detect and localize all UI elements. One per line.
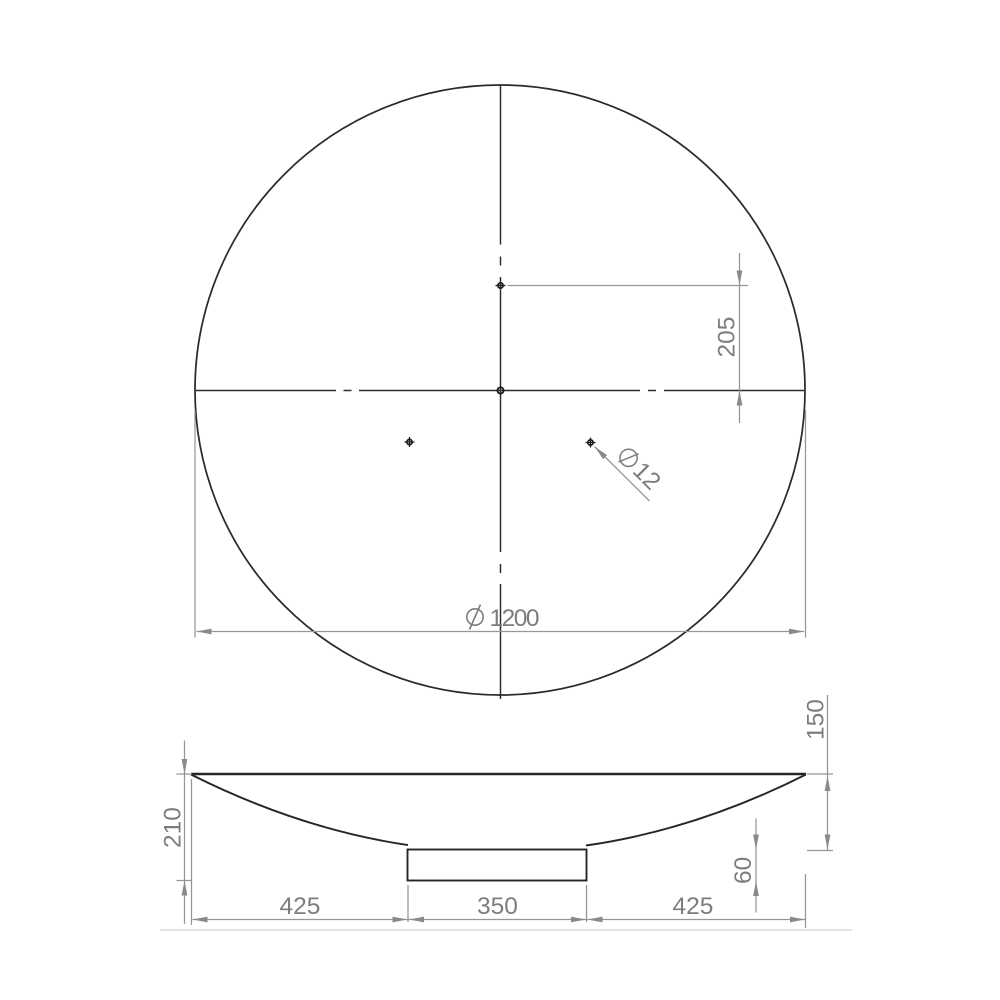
svg-text:60: 60 [730, 857, 757, 884]
svg-text:425: 425 [673, 893, 714, 920]
svg-text:150: 150 [803, 699, 830, 740]
svg-text:205: 205 [714, 317, 741, 358]
svg-text:1200: 1200 [490, 605, 539, 632]
svg-text:425: 425 [280, 893, 321, 920]
svg-text:12: 12 [627, 457, 665, 495]
svg-text:210: 210 [160, 807, 187, 848]
svg-text:350: 350 [477, 893, 518, 920]
